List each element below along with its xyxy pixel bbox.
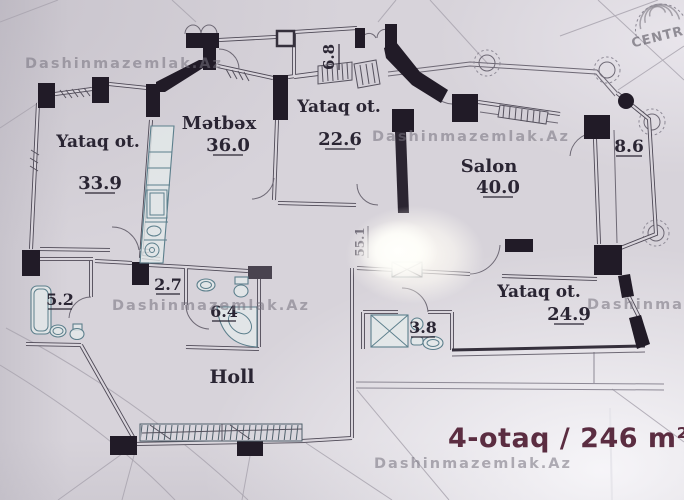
area-label-bathroom-left: 5.2 [46, 290, 74, 309]
sink-icon [50, 325, 66, 337]
room-label-bedroom-2: Yataq ot. [296, 97, 381, 117]
area-label-bedroom-1: 33.9 [78, 173, 122, 194]
structural-walls [22, 24, 650, 456]
toilet-icon [70, 324, 84, 340]
floor-plan-drawing: Yataq ot. 33.9 Mətbəx 36.0 Yataq ot. 22.… [0, 0, 684, 500]
room-label-kitchen: Mətbəx [182, 113, 257, 134]
watermark-text: Dashinmazemlak.Az [25, 56, 223, 72]
shower-icon [371, 315, 408, 347]
area-label-wc-right: 3.8 [409, 318, 437, 337]
area-label-bedroom-3: 24.9 [547, 304, 591, 325]
thin-walls [26, 28, 656, 444]
area-label-balcony-top: 6.8 [320, 44, 338, 70]
area-label-kitchen: 36.0 [206, 135, 250, 156]
centra-stamp: CENTRA [624, 0, 684, 51]
kitchen-counter [140, 126, 174, 263]
watermark-text: Dashinmazemlak.Az [372, 129, 570, 145]
wardrobe-strip [140, 262, 422, 441]
area-label-salon: 40.0 [476, 177, 520, 198]
area-label-balcony-right: 8.6 [614, 137, 644, 157]
sink-icon [197, 279, 215, 291]
room-label-salon: Salon [461, 156, 518, 177]
area-label-bedroom-2: 22.6 [318, 129, 362, 150]
toilet-icon [234, 277, 248, 297]
watermark-text: Dashinmazemlak.Az [374, 456, 572, 472]
room-label-bedroom-1: Yataq ot. [55, 132, 140, 152]
watermark-text: Dashinmazemlak.Az [587, 297, 684, 313]
dimension-label-hall: 55.1 [353, 227, 367, 256]
plan-title: 4-otaq / 246 m² [448, 423, 684, 454]
room-label-bedroom-3: Yataq ot. [496, 282, 581, 302]
toilet-icon [423, 337, 443, 350]
watermark-text: Dashinmazemlak.Az [112, 298, 310, 314]
stamp-text: CENTRA [630, 21, 684, 51]
area-label-corridor: 2.7 [154, 275, 182, 294]
floor-plan-photo: Yataq ot. 33.9 Mətbəx 36.0 Yataq ot. 22.… [0, 0, 684, 500]
room-label-hall: Holl [209, 366, 254, 388]
column-dot-icon [618, 93, 634, 109]
